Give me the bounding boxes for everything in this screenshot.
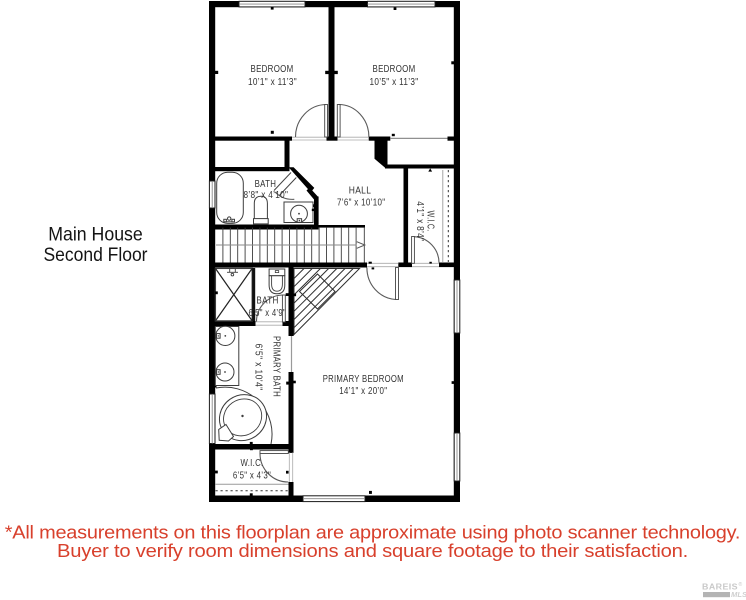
svg-text:BEDROOM: BEDROOM bbox=[251, 64, 294, 75]
svg-text:BATH: BATH bbox=[256, 296, 278, 307]
svg-text:Second Floor: Second Floor bbox=[44, 245, 149, 266]
svg-text:W.I.C.: W.I.C. bbox=[425, 211, 436, 232]
svg-text:4’1" x 8’4": 4’1" x 8’4" bbox=[414, 201, 425, 241]
svg-text:6’5" x 4’3": 6’5" x 4’3" bbox=[233, 470, 271, 481]
svg-text:MLS: MLS bbox=[731, 590, 746, 599]
svg-text:PRIMARY BEDROOM: PRIMARY BEDROOM bbox=[323, 374, 404, 385]
svg-text:8’8" x 4’10": 8’8" x 4’10" bbox=[244, 190, 289, 201]
svg-text:6’5" x 4’9": 6’5" x 4’9" bbox=[249, 308, 287, 319]
svg-text:10’1" x 11’3": 10’1" x 11’3" bbox=[248, 77, 297, 88]
svg-text:W.I.C.: W.I.C. bbox=[241, 458, 264, 469]
svg-text:10’5" x 11’3": 10’5" x 11’3" bbox=[370, 77, 419, 88]
svg-text:HALL: HALL bbox=[349, 185, 372, 196]
svg-text:Buyer to verify room dimension: Buyer to verify room dimensions and squa… bbox=[57, 540, 688, 561]
svg-text:6’5" x 10’4": 6’5" x 10’4" bbox=[252, 344, 263, 391]
svg-text:7’6" x 10’10": 7’6" x 10’10" bbox=[337, 197, 385, 208]
svg-text:PRIMARY BATH: PRIMARY BATH bbox=[271, 336, 282, 397]
svg-text:BATH: BATH bbox=[255, 179, 277, 190]
svg-text:BEDROOM: BEDROOM bbox=[373, 64, 416, 75]
svg-text:®: ® bbox=[739, 581, 743, 588]
svg-text:Main House: Main House bbox=[48, 224, 143, 245]
svg-text:14’1" x 20’0": 14’1" x 20’0" bbox=[339, 386, 387, 397]
